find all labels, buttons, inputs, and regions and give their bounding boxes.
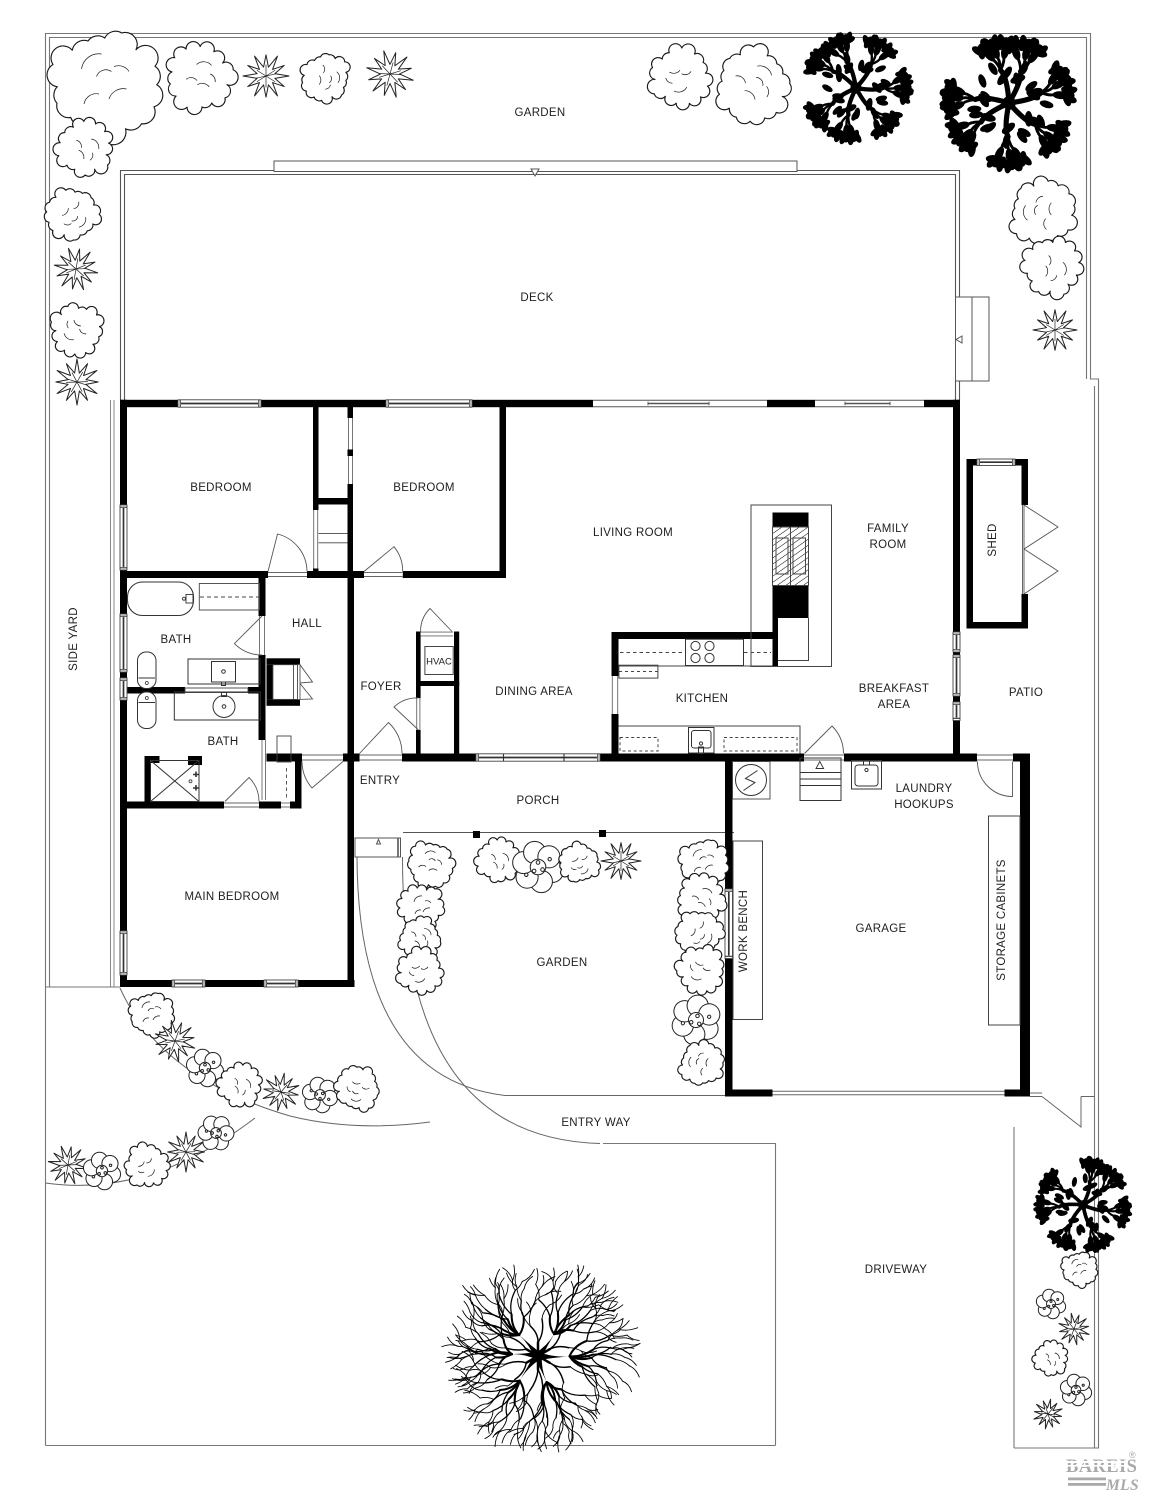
svg-text:DINING AREA: DINING AREA [495, 686, 572, 698]
svg-text:BEDROOM: BEDROOM [190, 482, 252, 494]
svg-text:PATIO: PATIO [1009, 687, 1043, 699]
svg-text:GARDEN: GARDEN [514, 107, 565, 119]
svg-text:MLS: MLS [1105, 1477, 1139, 1494]
svg-text:BEDROOM: BEDROOM [393, 482, 455, 494]
svg-text:GARDEN: GARDEN [536, 957, 587, 969]
svg-text:HALL: HALL [292, 618, 322, 630]
svg-text:BAREIS: BAREIS [1066, 1457, 1137, 1477]
svg-text:HVAC: HVAC [426, 657, 452, 668]
svg-text:DECK: DECK [520, 292, 553, 304]
svg-text:BREAKFAST: BREAKFAST [859, 683, 929, 695]
svg-text:AREA: AREA [878, 699, 911, 711]
svg-text:PORCH: PORCH [516, 795, 559, 807]
svg-text:®: ® [1129, 1450, 1136, 1460]
svg-text:LAUNDRY: LAUNDRY [896, 783, 953, 795]
svg-text:SIDE YARD: SIDE YARD [68, 607, 80, 671]
svg-text:BATH: BATH [160, 634, 191, 646]
svg-text:FAMILY: FAMILY [867, 523, 909, 535]
svg-text:WORK BENCH: WORK BENCH [738, 890, 750, 972]
svg-text:STORAGE CABINETS: STORAGE CABINETS [996, 859, 1008, 981]
svg-text:KITCHEN: KITCHEN [676, 693, 729, 705]
svg-text:SHED: SHED [987, 523, 999, 556]
svg-text:FOYER: FOYER [360, 681, 401, 693]
svg-text:MAIN BEDROOM: MAIN BEDROOM [185, 891, 280, 903]
svg-text:ROOM: ROOM [870, 539, 907, 551]
svg-text:ENTRY WAY: ENTRY WAY [561, 1117, 630, 1129]
svg-text:LIVING ROOM: LIVING ROOM [593, 527, 673, 539]
svg-text:ENTRY: ENTRY [360, 775, 400, 787]
svg-text:HOOKUPS: HOOKUPS [894, 799, 954, 811]
svg-text:GARAGE: GARAGE [855, 923, 906, 935]
svg-text:BATH: BATH [207, 736, 238, 748]
svg-text:DRIVEWAY: DRIVEWAY [865, 1264, 927, 1276]
